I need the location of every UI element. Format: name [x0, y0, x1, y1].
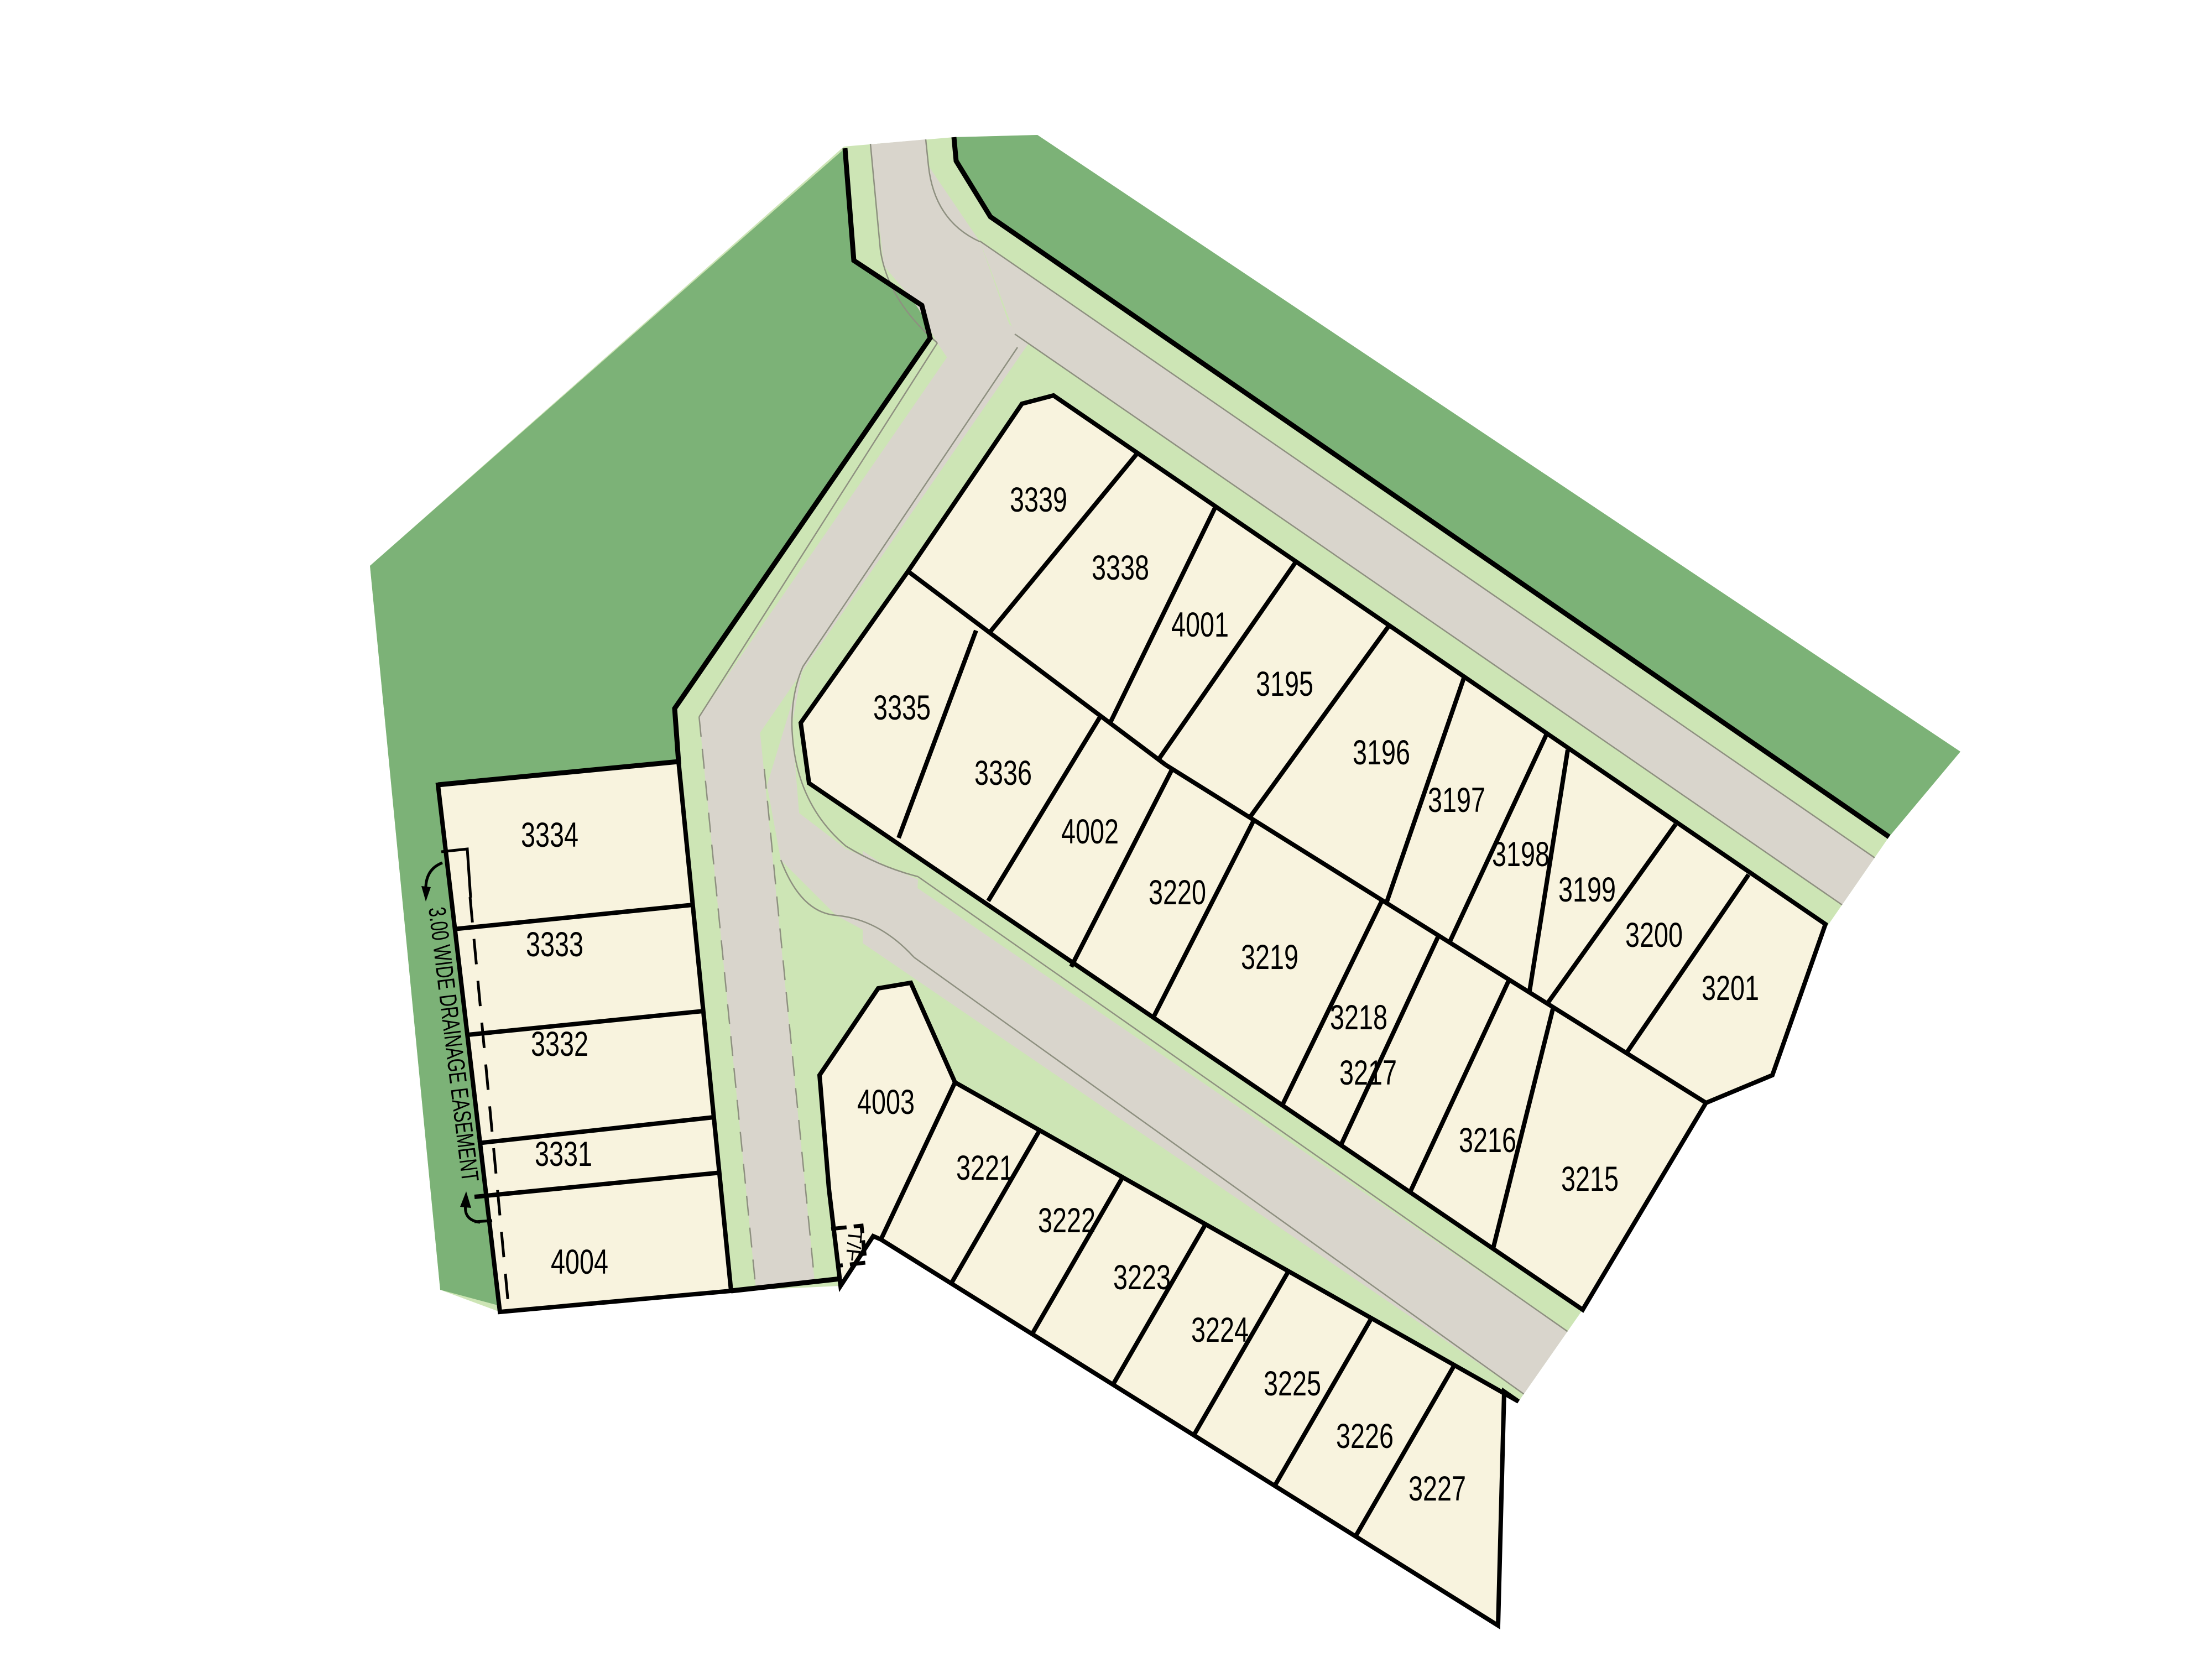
svg-text:3220: 3220: [1149, 873, 1206, 912]
svg-text:3221: 3221: [956, 1149, 1014, 1187]
svg-text:3332: 3332: [531, 1025, 588, 1064]
svg-text:3199: 3199: [1558, 871, 1616, 909]
svg-text:3225: 3225: [1264, 1364, 1321, 1403]
svg-text:3334: 3334: [521, 816, 578, 855]
svg-text:3217: 3217: [1339, 1054, 1397, 1092]
svg-text:3339: 3339: [1010, 481, 1067, 519]
svg-text:3333: 3333: [526, 925, 583, 964]
svg-text:T/F: T/F: [841, 1228, 867, 1263]
svg-text:3216: 3216: [1459, 1121, 1516, 1160]
svg-text:3201: 3201: [1702, 969, 1759, 1008]
svg-text:3198: 3198: [1492, 835, 1550, 874]
svg-text:3223: 3223: [1113, 1258, 1171, 1297]
svg-text:3197: 3197: [1428, 781, 1485, 820]
svg-text:4003: 4003: [857, 1083, 915, 1122]
svg-text:3200: 3200: [1625, 916, 1683, 955]
svg-text:4004: 4004: [551, 1243, 608, 1281]
svg-text:3336: 3336: [974, 754, 1032, 793]
svg-text:3226: 3226: [1336, 1417, 1394, 1456]
svg-text:3331: 3331: [535, 1135, 592, 1174]
svg-text:3215: 3215: [1561, 1160, 1619, 1199]
svg-text:3218: 3218: [1330, 998, 1387, 1037]
svg-text:4001: 4001: [1171, 606, 1229, 644]
svg-text:3224: 3224: [1191, 1311, 1249, 1350]
svg-text:3196: 3196: [1353, 733, 1410, 772]
svg-text:4002: 4002: [1061, 812, 1119, 851]
svg-text:3219: 3219: [1241, 938, 1298, 977]
svg-text:3222: 3222: [1038, 1201, 1095, 1240]
svg-text:3335: 3335: [873, 689, 931, 727]
svg-text:3338: 3338: [1092, 549, 1149, 587]
svg-text:3195: 3195: [1256, 665, 1313, 704]
svg-text:3227: 3227: [1408, 1470, 1466, 1508]
